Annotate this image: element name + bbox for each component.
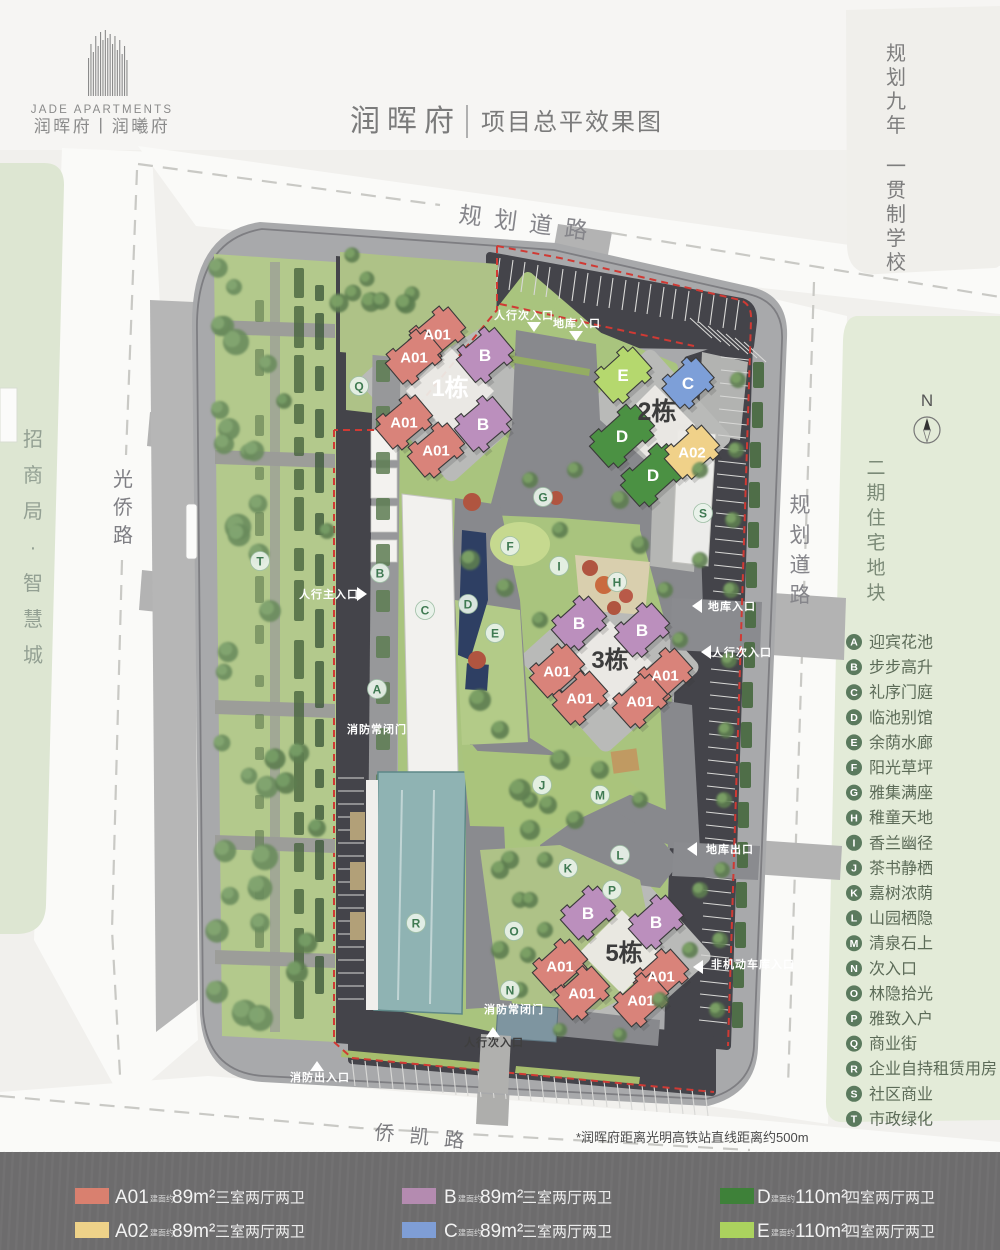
svg-text:A01: A01 xyxy=(566,690,594,707)
svg-text:R: R xyxy=(850,1063,858,1075)
svg-text:A01: A01 xyxy=(647,968,675,985)
svg-text:R: R xyxy=(412,916,421,930)
svg-text:次入口: 次入口 xyxy=(869,960,917,978)
svg-text:林隐拾光: 林隐拾光 xyxy=(869,985,933,1003)
svg-text:B: B xyxy=(479,346,491,365)
svg-text:E: E xyxy=(491,626,499,640)
svg-text:二: 二 xyxy=(866,458,885,479)
svg-text:临池别馆: 临池别馆 xyxy=(869,709,933,727)
svg-text:人行次入口: 人行次入口 xyxy=(464,1035,524,1049)
svg-text:人行次入口: 人行次入口 xyxy=(494,308,554,322)
svg-text:T: T xyxy=(256,554,264,568)
svg-text:局: 局 xyxy=(23,501,43,523)
svg-text:光: 光 xyxy=(113,468,133,491)
svg-text:市政绿化: 市政绿化 xyxy=(869,1110,933,1128)
svg-text:Q: Q xyxy=(850,1038,858,1050)
svg-text:规: 规 xyxy=(886,42,906,65)
svg-text:九: 九 xyxy=(886,90,906,113)
svg-text:E: E xyxy=(850,737,857,749)
svg-text:1栋: 1栋 xyxy=(431,374,468,402)
svg-text:清泉石上: 清泉石上 xyxy=(869,935,933,953)
svg-text:道: 道 xyxy=(790,554,811,577)
svg-text:C: C xyxy=(444,1221,458,1242)
svg-text:制: 制 xyxy=(886,203,906,226)
svg-text:E: E xyxy=(617,366,628,385)
svg-text:三室两厅两卫: 三室两厅两卫 xyxy=(215,1224,305,1241)
svg-text:四室两厅两卫: 四室两厅两卫 xyxy=(845,1224,935,1241)
svg-text:迎宾花池: 迎宾花池 xyxy=(869,634,933,652)
svg-text:B: B xyxy=(636,621,648,640)
svg-text:B: B xyxy=(477,415,489,434)
svg-text:B: B xyxy=(650,913,662,932)
svg-text:M: M xyxy=(850,938,859,950)
svg-text:N: N xyxy=(921,391,933,410)
svg-text:G: G xyxy=(538,490,547,504)
svg-text:划: 划 xyxy=(790,524,811,547)
svg-text:商业街: 商业街 xyxy=(869,1035,917,1053)
svg-text:B: B xyxy=(573,614,585,633)
svg-text:G: G xyxy=(850,787,858,799)
svg-text:期: 期 xyxy=(866,482,885,504)
svg-text:C: C xyxy=(682,374,694,393)
svg-text:I: I xyxy=(557,559,560,573)
svg-text:·: · xyxy=(30,537,37,559)
svg-text:A01: A01 xyxy=(568,985,596,1002)
svg-text:建面约: 建面约 xyxy=(150,1228,174,1238)
svg-text:C: C xyxy=(850,687,858,699)
svg-text:A02: A02 xyxy=(678,444,706,461)
svg-text:P: P xyxy=(608,883,616,897)
svg-text:人行主入口: 人行主入口 xyxy=(299,587,359,601)
svg-text:社区商业: 社区商业 xyxy=(869,1085,933,1103)
svg-text:侨: 侨 xyxy=(113,496,133,519)
svg-text:H: H xyxy=(613,575,622,589)
svg-text:一: 一 xyxy=(886,156,906,178)
svg-text:余荫水廊: 余荫水廊 xyxy=(869,733,933,752)
svg-text:A01: A01 xyxy=(423,326,451,343)
svg-text:O: O xyxy=(509,924,518,938)
svg-text:建面约: 建面约 xyxy=(150,1194,174,1204)
svg-text:K: K xyxy=(564,861,573,875)
svg-text:N: N xyxy=(506,983,515,997)
svg-text:润晖府: 润晖府 xyxy=(350,105,461,138)
svg-text:四室两厅两卫: 四室两厅两卫 xyxy=(845,1190,935,1207)
svg-text:划: 划 xyxy=(886,66,906,89)
svg-text:5栋: 5栋 xyxy=(605,939,642,967)
svg-text:香兰幽径: 香兰幽径 xyxy=(869,834,933,852)
svg-text:路: 路 xyxy=(790,584,811,607)
svg-text:89m²: 89m² xyxy=(480,1187,523,1208)
svg-text:A01: A01 xyxy=(543,663,571,680)
svg-text:慧: 慧 xyxy=(23,608,43,631)
svg-text:F: F xyxy=(851,762,858,774)
svg-text:建面约: 建面约 xyxy=(458,1228,482,1238)
svg-text:M: M xyxy=(595,788,605,802)
svg-text:2栋: 2栋 xyxy=(638,397,677,426)
svg-text:J: J xyxy=(539,778,546,792)
svg-text:B: B xyxy=(376,566,385,580)
svg-text:B: B xyxy=(582,904,594,923)
svg-text:城: 城 xyxy=(23,644,43,667)
svg-text:校: 校 xyxy=(886,251,906,274)
svg-text:A01: A01 xyxy=(422,442,450,459)
svg-text:地: 地 xyxy=(866,557,885,579)
svg-text:S: S xyxy=(850,1088,857,1100)
svg-text:建面约: 建面约 xyxy=(458,1194,482,1204)
svg-text:B: B xyxy=(444,1187,457,1208)
svg-text:L: L xyxy=(851,913,858,925)
svg-text:I: I xyxy=(853,837,856,849)
svg-text:A01: A01 xyxy=(400,349,428,366)
svg-text:稚童天地: 稚童天地 xyxy=(869,808,933,827)
svg-text:山园栖隐: 山园栖隐 xyxy=(869,910,933,928)
svg-text:89m²: 89m² xyxy=(172,1187,215,1208)
svg-text:F: F xyxy=(506,539,513,553)
svg-text:S: S xyxy=(699,506,707,520)
svg-text:A02: A02 xyxy=(115,1221,149,1242)
svg-text:非机动车库入口: 非机动车库入口 xyxy=(711,957,795,971)
svg-text:J: J xyxy=(851,863,857,875)
svg-text:H: H xyxy=(850,812,858,824)
svg-text:招: 招 xyxy=(23,428,43,451)
svg-text:雅集满座: 雅集满座 xyxy=(869,784,933,802)
svg-text:三室两厅两卫: 三室两厅两卫 xyxy=(522,1190,612,1207)
svg-text:茶书静栖: 茶书静栖 xyxy=(869,859,933,877)
svg-text:A01: A01 xyxy=(626,693,654,710)
svg-text:T: T xyxy=(851,1114,858,1126)
svg-text:A: A xyxy=(850,637,858,649)
svg-text:步步高升: 步步高升 xyxy=(869,659,933,677)
svg-text:89m²: 89m² xyxy=(480,1221,523,1242)
svg-text:三室两厅两卫: 三室两厅两卫 xyxy=(215,1190,305,1207)
svg-text:D: D xyxy=(647,466,659,485)
svg-text:规: 规 xyxy=(790,494,811,517)
svg-text:智: 智 xyxy=(23,572,43,595)
svg-text:路: 路 xyxy=(113,524,133,547)
svg-text:K: K xyxy=(850,888,858,900)
svg-text:3栋: 3栋 xyxy=(591,646,628,674)
svg-text:O: O xyxy=(850,988,858,1000)
svg-text:A: A xyxy=(373,682,382,696)
svg-text:C: C xyxy=(421,603,430,617)
svg-text:消防常闭门: 消防常闭门 xyxy=(347,722,407,736)
svg-text:B: B xyxy=(850,662,858,674)
svg-text:项目总平效果图: 项目总平效果图 xyxy=(481,109,663,136)
svg-text:89m²: 89m² xyxy=(172,1221,215,1242)
svg-text:学: 学 xyxy=(886,227,906,250)
svg-text:A01: A01 xyxy=(390,414,418,431)
svg-text:A01: A01 xyxy=(115,1187,149,1208)
svg-text:110m²: 110m² xyxy=(795,1187,847,1208)
svg-text:年: 年 xyxy=(886,114,906,137)
svg-text:宅: 宅 xyxy=(866,532,885,554)
svg-text:消防常闭门: 消防常闭门 xyxy=(484,1002,544,1016)
svg-text:建面约: 建面约 xyxy=(771,1228,795,1238)
svg-text:嘉树浓荫: 嘉树浓荫 xyxy=(869,885,933,903)
svg-text:地库入口: 地库入口 xyxy=(553,316,601,330)
svg-text:Q: Q xyxy=(354,379,363,393)
svg-text:A01: A01 xyxy=(627,992,655,1009)
svg-text:住: 住 xyxy=(866,507,885,529)
svg-text:消防出入口: 消防出入口 xyxy=(290,1070,350,1084)
svg-text:N: N xyxy=(850,963,858,975)
svg-text:块: 块 xyxy=(866,582,885,604)
svg-text:建面约: 建面约 xyxy=(771,1194,795,1204)
svg-text:110m²: 110m² xyxy=(795,1221,847,1242)
svg-text:三室两厅两卫: 三室两厅两卫 xyxy=(522,1224,612,1241)
svg-text:E: E xyxy=(757,1221,770,1242)
svg-text:A01: A01 xyxy=(546,958,574,975)
svg-text:企业自持租赁用房: 企业自持租赁用房 xyxy=(869,1060,997,1078)
svg-text:*润晖府距离光明高铁站直线距离约500m: *润晖府距离光明高铁站直线距离约500m xyxy=(576,1130,809,1145)
svg-text:D: D xyxy=(850,712,858,724)
svg-text:人行次入口: 人行次入口 xyxy=(712,645,772,659)
svg-text:润晖府丨润曦府: 润晖府丨润曦府 xyxy=(34,117,171,136)
svg-text:D: D xyxy=(616,427,628,446)
svg-text:D: D xyxy=(464,597,473,611)
svg-text:阳光草坪: 阳光草坪 xyxy=(869,759,933,777)
svg-text:地库出口: 地库出口 xyxy=(706,842,754,856)
svg-text:JADE APARTMENTS: JADE APARTMENTS xyxy=(31,104,174,116)
svg-text:A01: A01 xyxy=(651,667,679,684)
svg-text:商: 商 xyxy=(23,464,43,487)
svg-text:贯: 贯 xyxy=(886,180,906,202)
svg-text:D: D xyxy=(757,1187,771,1208)
svg-text:P: P xyxy=(850,1013,857,1025)
svg-text:雅致入户: 雅致入户 xyxy=(869,1010,933,1028)
svg-text:地库入口: 地库入口 xyxy=(708,599,756,613)
svg-text:礼序门庭: 礼序门庭 xyxy=(869,684,933,702)
svg-text:L: L xyxy=(616,848,623,862)
